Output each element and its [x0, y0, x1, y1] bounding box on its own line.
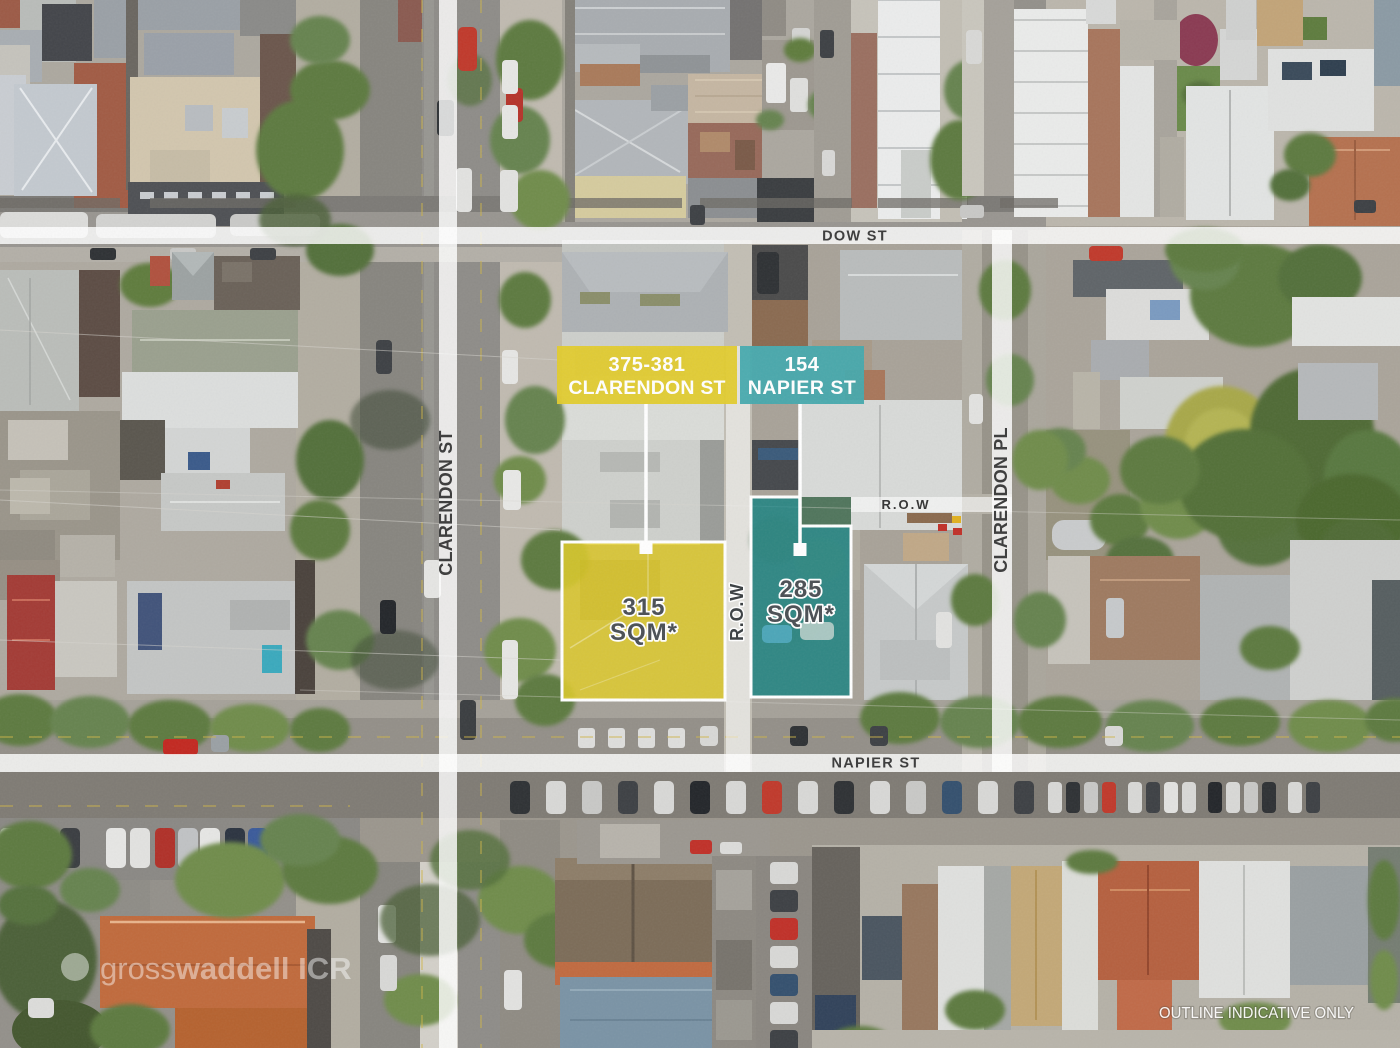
svg-text:grosswaddell ICR: grosswaddell ICR — [100, 951, 352, 986]
svg-text:OUTLINE INDICATIVE ONLY: OUTLINE INDICATIVE ONLY — [1159, 1005, 1354, 1022]
